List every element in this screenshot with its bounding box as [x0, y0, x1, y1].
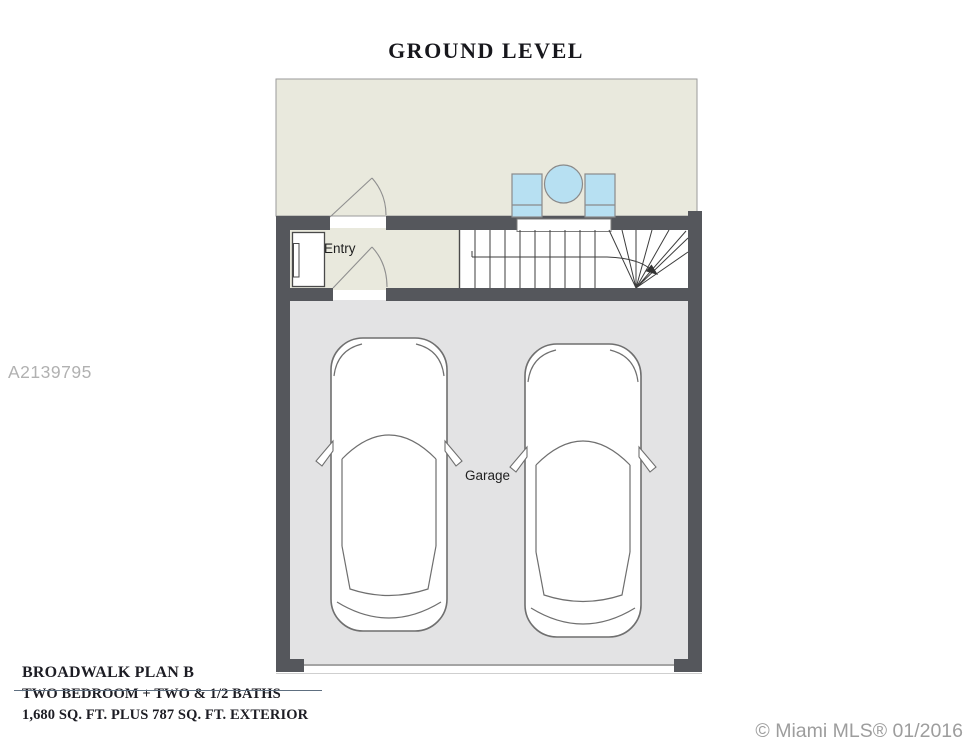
patio-table [545, 165, 583, 203]
plan-bed-bath: TWO BEDROOM + TWO & 1/2 BATHS [22, 686, 308, 703]
wall-stub-bottom-right [674, 659, 688, 672]
garage-label: Garage [465, 468, 510, 483]
entry-label: Entry [324, 241, 356, 256]
wall-mid-left [290, 288, 333, 301]
patio-area [276, 79, 697, 216]
stairs-area [459, 230, 688, 288]
car-top-view-left [316, 338, 462, 631]
patio-chair-left [512, 174, 542, 217]
plan-name: BROADWALK PLAN B [22, 664, 308, 682]
floor-plan-drawing [0, 0, 972, 751]
wall-left [276, 216, 290, 672]
page-title: GROUND LEVEL [0, 38, 972, 64]
plan-summary: BROADWALK PLAN B TWO BEDROOM + TWO & 1/2… [22, 664, 308, 724]
sliding-door [517, 219, 611, 232]
mls-watermark: A2139795 [8, 362, 92, 383]
entry-closet [293, 233, 325, 287]
plan-sqft: 1,680 SQ. FT. PLUS 787 SQ. FT. EXTERIOR [22, 707, 308, 724]
copyright-text: © Miami MLS® 01/2016 [755, 720, 963, 743]
plan-name-underline [14, 690, 322, 691]
wall-right [688, 211, 702, 672]
patio-chair-right [585, 174, 615, 217]
floorplan-page: GROUND LEVEL Entry Garage A2139795 BROAD… [0, 0, 972, 751]
wall-mid-right [386, 288, 688, 301]
car-top-view-right [510, 344, 656, 637]
